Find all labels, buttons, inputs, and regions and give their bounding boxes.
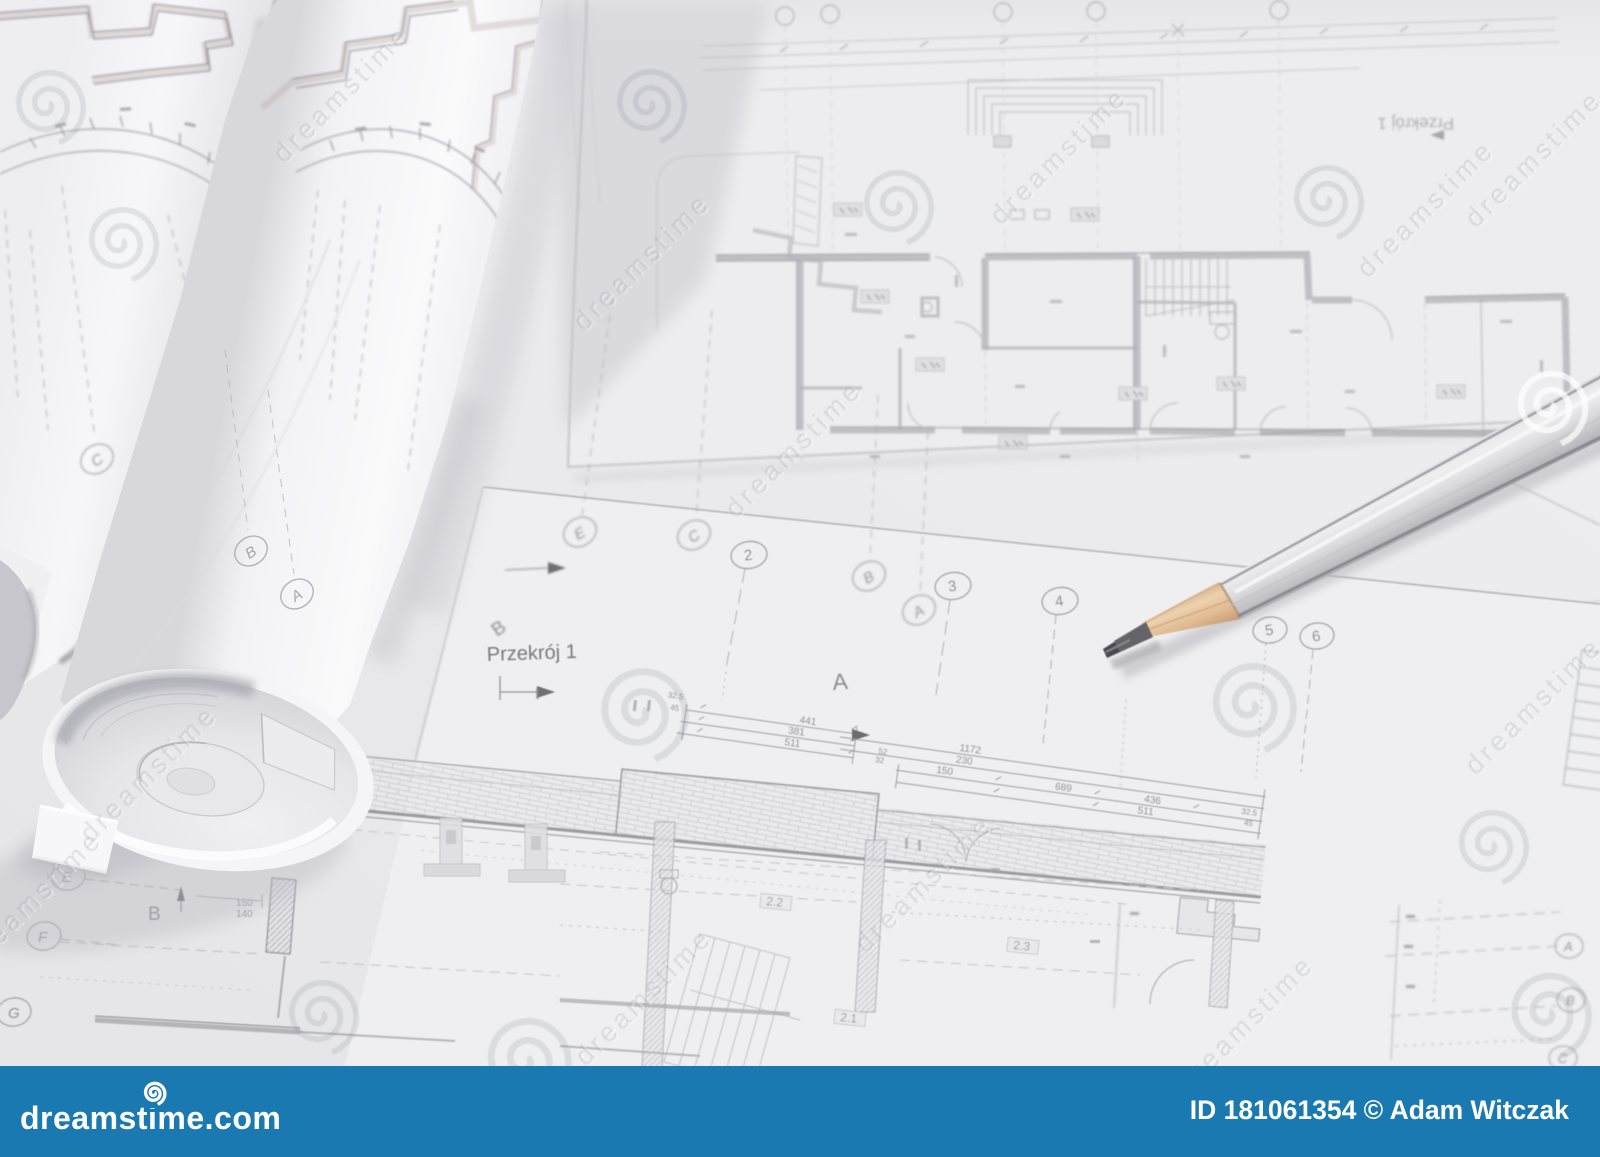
svg-text:Przekrój 1: Przekrój 1 xyxy=(1377,114,1454,133)
svg-text:45: 45 xyxy=(670,703,681,713)
svg-text:511: 511 xyxy=(1137,805,1155,818)
svg-text:ID 181061354 © Adam Witczak: ID 181061354 © Adam Witczak xyxy=(1190,1095,1569,1125)
svg-text:45: 45 xyxy=(1243,818,1254,828)
svg-text:2.2: 2.2 xyxy=(766,894,784,910)
svg-text:A: A xyxy=(1563,939,1573,954)
svg-text:32: 32 xyxy=(875,755,886,765)
svg-text:G: G xyxy=(8,1005,20,1022)
svg-text:511: 511 xyxy=(784,737,802,750)
svg-text:Przekrój 1: Przekrój 1 xyxy=(486,641,577,666)
svg-text:2.3: 2.3 xyxy=(1013,938,1031,954)
svg-text:A: A xyxy=(832,668,850,695)
svg-text:2.1: 2.1 xyxy=(840,1010,858,1026)
